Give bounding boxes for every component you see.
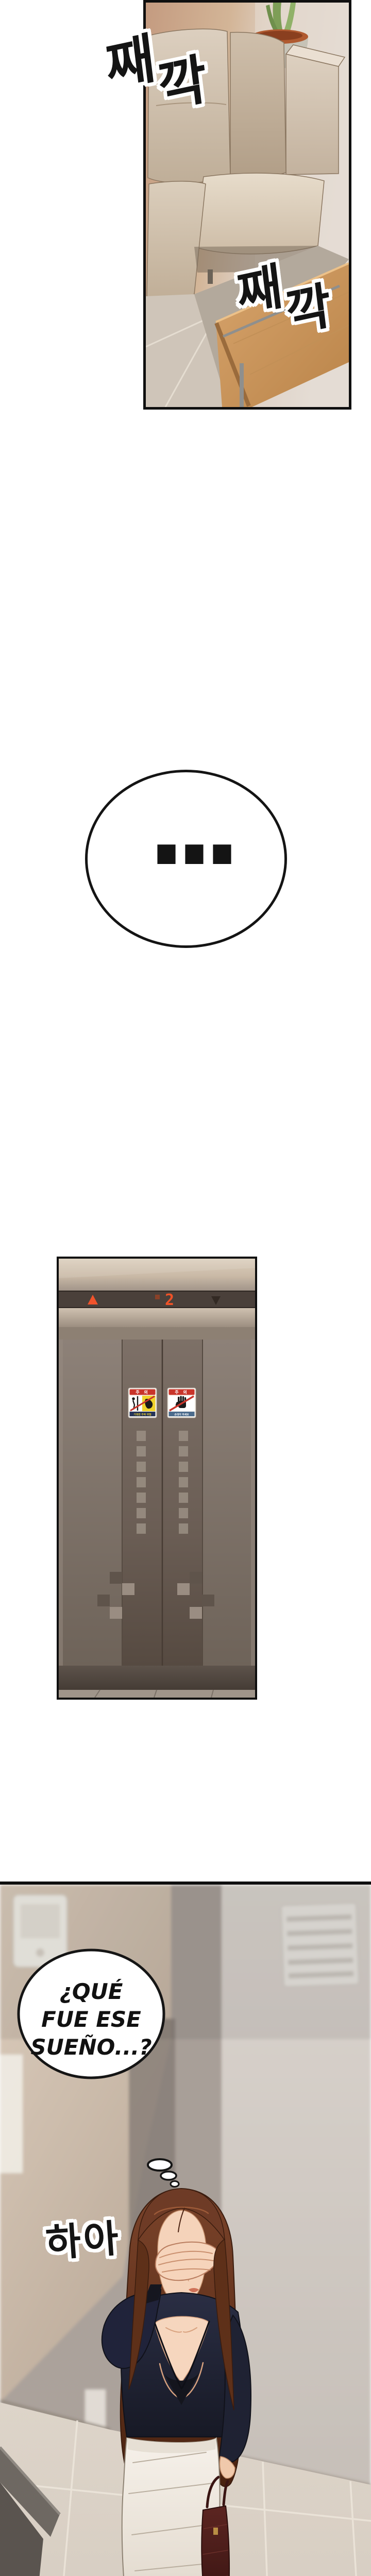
sfx-char: 째 xyxy=(103,31,158,95)
bag-clasp xyxy=(213,2528,218,2535)
sticker-header: 주 의 xyxy=(175,1389,189,1395)
sfx-char: 깍 xyxy=(283,280,334,339)
floor-indicator-strip: 2 xyxy=(59,1291,255,1309)
thought-line-1: ¿QUÉ xyxy=(60,1978,123,2004)
elevator-floor-strip xyxy=(59,1690,255,1698)
sfx-char: 깍 xyxy=(155,52,210,115)
sfx-char: 째 xyxy=(234,261,285,320)
thought-line-3: SUEÑO...? xyxy=(30,2034,151,2060)
sticker-caption: 기대면 추락 위험 xyxy=(133,1413,151,1416)
elevator-doors xyxy=(59,1340,255,1666)
warning-sticker-fall: 주 의 기대면 추락 위험 xyxy=(128,1388,157,1418)
elevator-illustration: 2 xyxy=(59,1259,255,1698)
sofa-armrest xyxy=(286,54,339,175)
thought-trail-3 xyxy=(171,2181,179,2187)
silence-speech-bubble: ... xyxy=(85,770,287,948)
thought-line-2: FUE ESE xyxy=(41,2007,141,2032)
elevator-kick-plate xyxy=(59,1666,255,1690)
display-segment-icon xyxy=(155,1295,160,1299)
thought-trail-2 xyxy=(161,2172,176,2180)
sfx-text: 하아 xyxy=(44,2216,123,2266)
sticker-header: 주 의 xyxy=(136,1389,149,1395)
thought-trail-1 xyxy=(148,2159,172,2171)
panel-elevator: 2 xyxy=(57,1257,257,1700)
sticker-caption: 손대지 마세요 xyxy=(174,1413,189,1416)
floor-display: 2 xyxy=(165,1291,174,1309)
ellipsis-text: ... xyxy=(88,777,284,880)
webtoon-page: 째 깍 째 깍 ... xyxy=(0,0,371,2576)
wall-panel xyxy=(0,2055,23,2173)
sfx-sigh: 하아 xyxy=(44,2214,161,2268)
warning-sticker-hand: 주 의 손대지 마세요 xyxy=(167,1388,196,1418)
